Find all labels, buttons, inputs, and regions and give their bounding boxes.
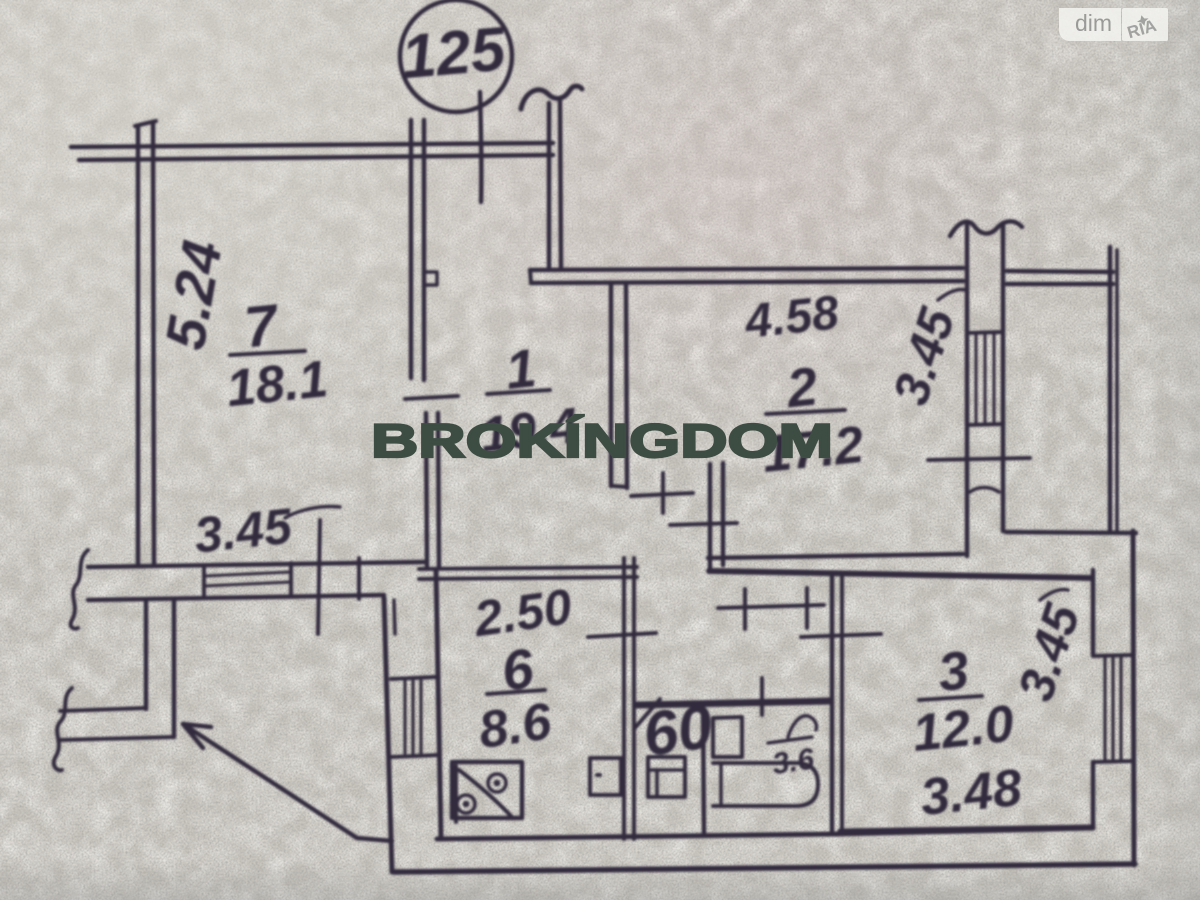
svg-text:BROKÍNGDOM: BROKÍNGDOM <box>371 414 833 467</box>
svg-text:125: 125 <box>399 14 510 92</box>
svg-text:12.0: 12.0 <box>910 695 1017 763</box>
svg-text:3.6: 3.6 <box>770 743 816 782</box>
svg-text:3: 3 <box>935 640 971 703</box>
svg-text:18.1: 18.1 <box>224 350 331 418</box>
svg-text:8.6: 8.6 <box>475 692 556 760</box>
svg-text:3.45: 3.45 <box>192 498 296 564</box>
svg-text:4.58: 4.58 <box>742 286 842 349</box>
svg-text:60: 60 <box>639 692 717 770</box>
svg-text:dim: dim <box>1075 10 1112 36</box>
svg-text:3.48: 3.48 <box>918 759 1025 827</box>
